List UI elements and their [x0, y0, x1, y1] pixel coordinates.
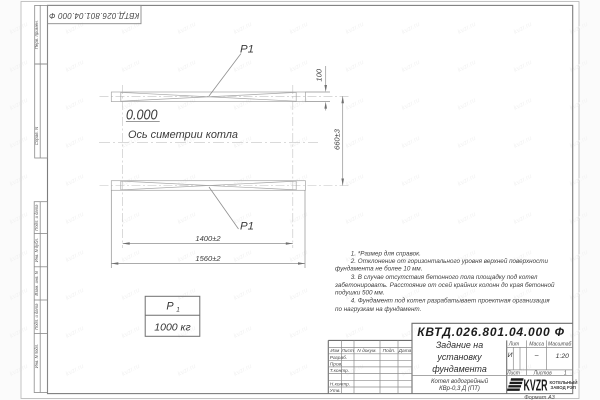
svg-text:Инв. N дубл.: Инв. N дубл.: [34, 238, 39, 262]
svg-text:КВТД.026.801.04.000 Ф: КВТД.026.801.04.000 Ф: [417, 325, 565, 339]
svg-text:660±3: 660±3: [332, 128, 341, 150]
svg-text:Справ. N: Справ. N: [34, 126, 39, 145]
svg-text:фундамента не более 10 мм.: фундамента не более 10 мм.: [335, 265, 423, 273]
svg-text:забетонировать. Расстояние от: забетонировать. Расстояние от осей крайн…: [334, 281, 555, 289]
svg-text:4. Фундамент под котел разраба: 4. Фундамент под котел разрабатывает про…: [351, 297, 550, 305]
svg-text:Взам. инв. N: Взам. инв. N: [34, 270, 39, 295]
svg-text:N докум.: N докум.: [357, 348, 376, 354]
svg-text:1560±2: 1560±2: [195, 254, 221, 263]
svg-text:P1: P1: [240, 221, 254, 233]
svg-text:фундамента: фундамента: [432, 364, 487, 374]
svg-text:1. *Размер для справок.: 1. *Размер для справок.: [351, 250, 421, 258]
svg-text:установку: установку: [436, 352, 482, 362]
svg-text:P: P: [166, 301, 174, 313]
svg-text:1: 1: [176, 307, 180, 314]
svg-text:100: 100: [314, 68, 323, 81]
svg-text:Масштаб: Масштаб: [548, 342, 572, 348]
svg-text:0.000: 0.000: [126, 107, 158, 123]
svg-text:Подп. и дата: Подп. и дата: [34, 303, 39, 330]
svg-text:Листов: Листов: [533, 370, 553, 376]
svg-text:P1: P1: [240, 44, 254, 56]
svg-text:Н.контр.: Н.контр.: [330, 382, 350, 388]
svg-text:Дата: Дата: [398, 348, 412, 354]
svg-text:Подп. и дата: Подп. и дата: [34, 204, 39, 231]
svg-text:Масса: Масса: [529, 342, 544, 348]
svg-text:1:20: 1:20: [556, 353, 569, 360]
svg-text:Утв.: Утв.: [330, 388, 341, 394]
svg-text:Подп.: Подп.: [383, 348, 396, 354]
svg-text:Лист: Лист: [341, 348, 354, 354]
svg-text:2. Отклонение от горизонтально: 2. Отклонение от горизонтального уровня …: [350, 257, 549, 265]
svg-text:Изм: Изм: [330, 348, 340, 354]
svg-text:KVZR: KVZR: [524, 377, 548, 394]
svg-text:Пров.: Пров.: [330, 362, 343, 368]
svg-text:КВр-0,3 Д (ПТ): КВр-0,3 Д (ПТ): [439, 386, 480, 392]
svg-text:Инв. N подл.: Инв. N подл.: [34, 344, 39, 368]
svg-text:по нагрузкам на фундамент.: по нагрузкам на фундамент.: [335, 305, 421, 313]
svg-text:Лист: Лист: [506, 370, 520, 376]
svg-text:Формат А3: Формат А3: [524, 395, 555, 400]
svg-text:Т.контр.: Т.контр.: [330, 368, 349, 374]
svg-text:КВТД.026.801.04.000 Ф: КВТД.026.801.04.000 Ф: [49, 11, 140, 20]
svg-text:Котел водогрейный: Котел водогрейный: [431, 378, 489, 385]
svg-text:Ось симетрии котла: Ось симетрии котла: [128, 129, 238, 141]
svg-text:Лит: Лит: [508, 342, 519, 348]
svg-text:Задание на: Задание на: [436, 340, 483, 350]
svg-text:подушки 500 мм.: подушки 500 мм.: [335, 288, 385, 296]
svg-text:Перв. примен.: Перв. примен.: [34, 20, 39, 49]
svg-text:1: 1: [564, 370, 567, 376]
svg-text:1400±2: 1400±2: [195, 234, 221, 243]
svg-text:1000 кг: 1000 кг: [154, 322, 190, 334]
svg-text:3. В случае отсутствия бетонно: 3. В случае отсутствия бетонного пола пл…: [351, 273, 538, 281]
svg-text:Разраб.: Разраб.: [330, 355, 347, 361]
svg-text:ЗАВОД РЭП: ЗАВОД РЭП: [551, 385, 576, 390]
svg-text:И: И: [508, 352, 513, 359]
svg-text:–: –: [534, 352, 539, 359]
